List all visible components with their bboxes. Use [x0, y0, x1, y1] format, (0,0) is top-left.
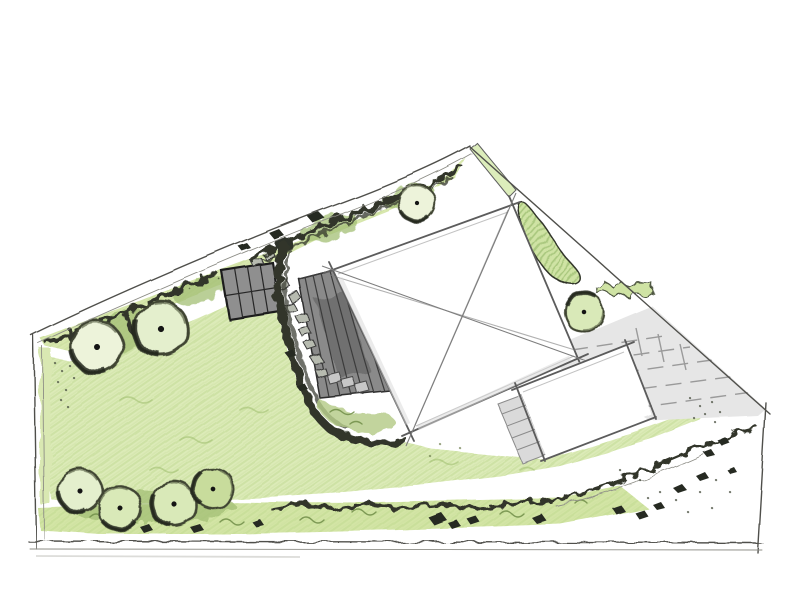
boundary-left [33, 335, 36, 548]
plan-canvas [0, 0, 800, 600]
paved-shed-base [222, 263, 281, 320]
zigzag-bed [597, 281, 654, 297]
left-verge [40, 348, 51, 504]
boundary-right-lower [757, 403, 766, 552]
boundary-bottom-2 [30, 549, 762, 550]
boundary-bottom-shadow [36, 556, 300, 557]
apex-gate-strip [470, 143, 515, 196]
garden-plan-sketch [0, 0, 800, 600]
boundary-bottom [28, 541, 762, 543]
